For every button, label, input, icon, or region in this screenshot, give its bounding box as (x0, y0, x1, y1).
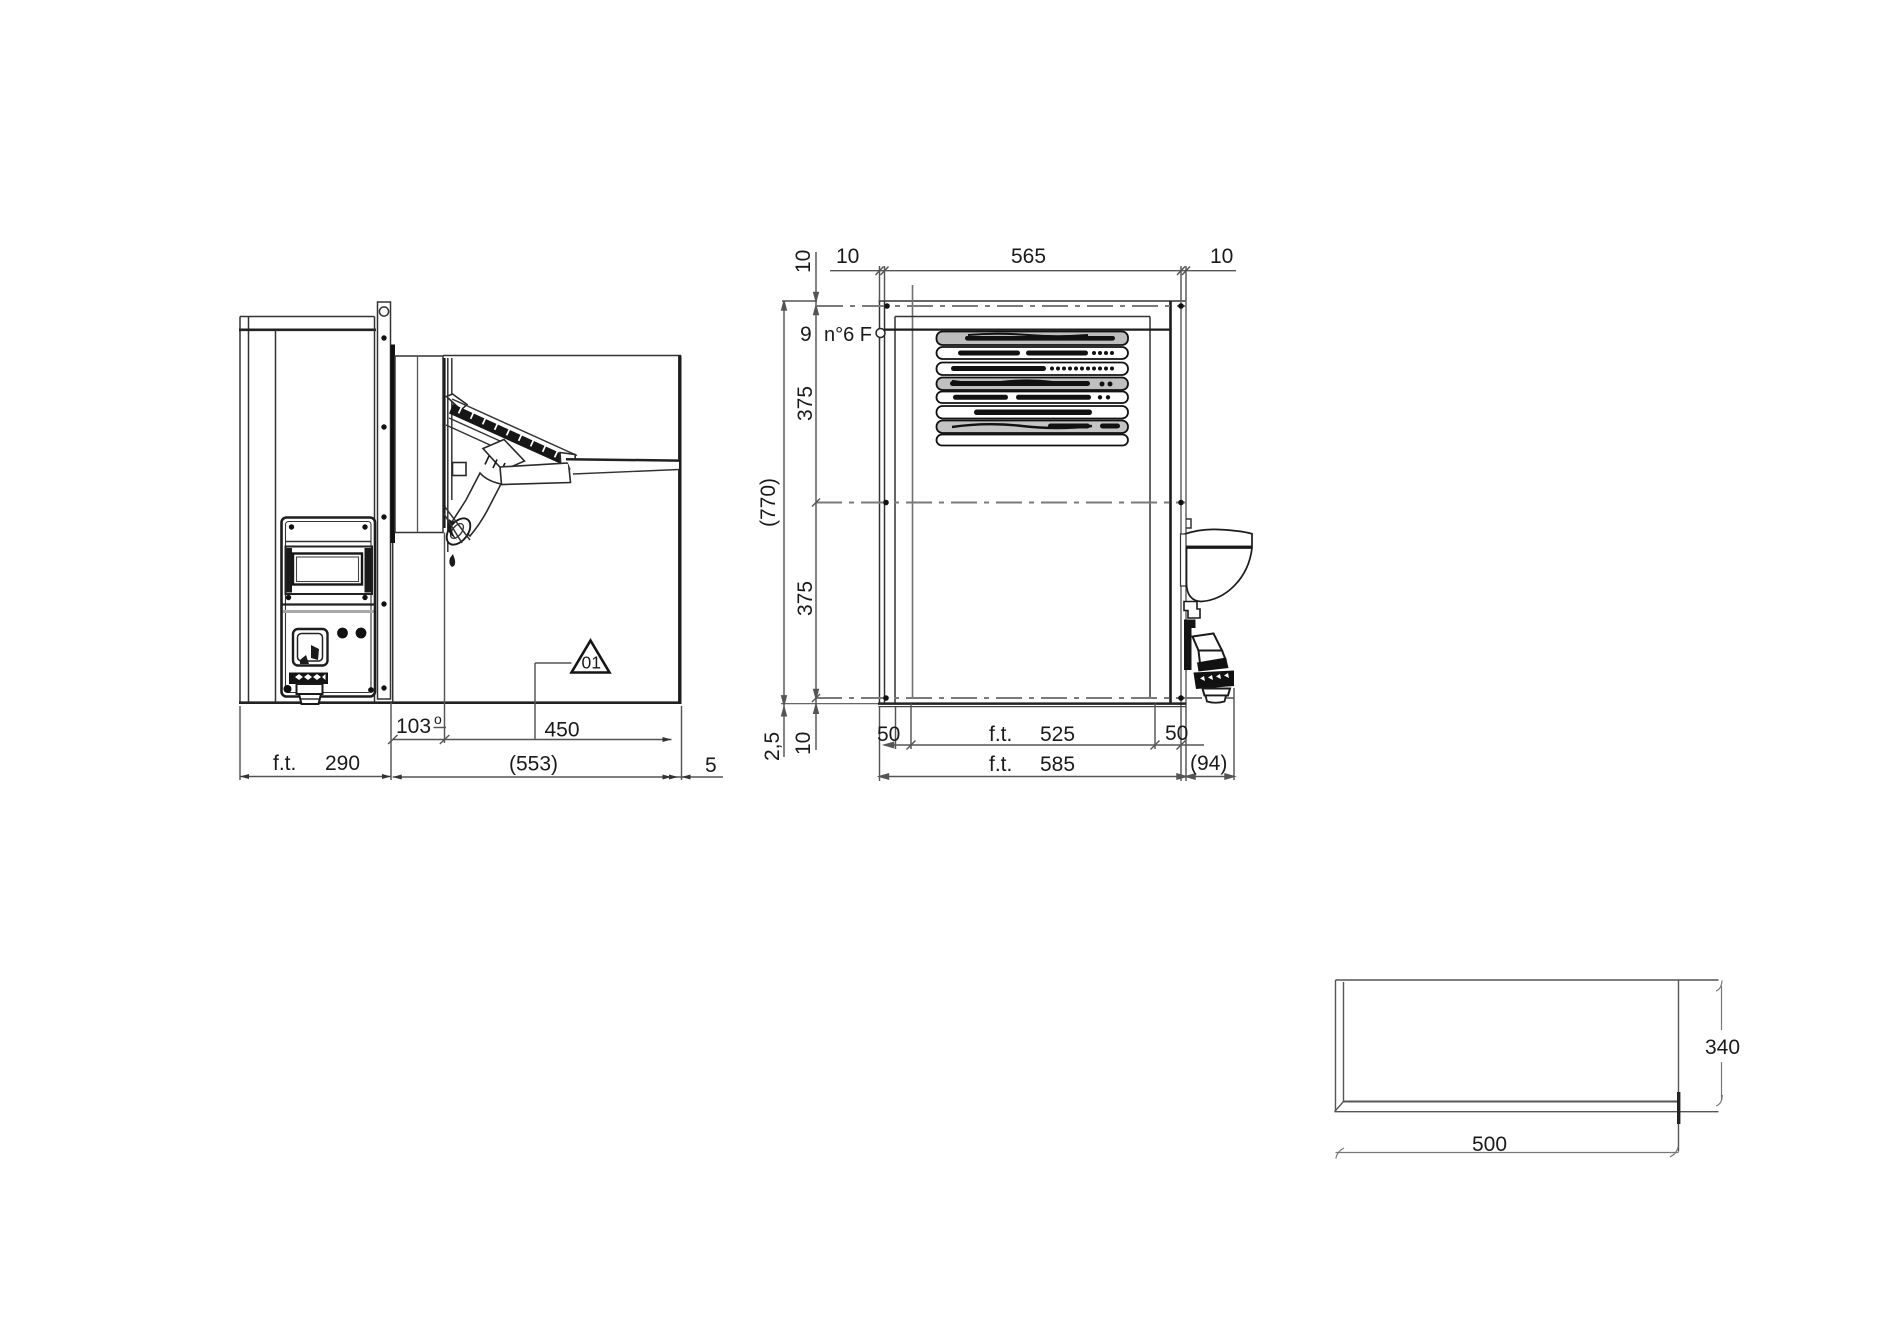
svg-text:10: 10 (1210, 245, 1233, 268)
svg-text:(94): (94) (1190, 752, 1227, 775)
svg-text:01: 01 (582, 653, 601, 673)
svg-text:50: 50 (1165, 722, 1188, 745)
svg-text:450: 450 (545, 719, 580, 742)
svg-text:103: 103 (396, 715, 431, 738)
svg-text:375: 375 (794, 581, 817, 616)
svg-text:500: 500 (1472, 1133, 1507, 1156)
svg-text:585: 585 (1040, 753, 1075, 776)
svg-text:f.t.: f.t. (989, 723, 1012, 746)
svg-text:9: 9 (800, 323, 812, 346)
svg-text:o: o (434, 711, 442, 727)
svg-text:(553): (553) (509, 753, 558, 776)
svg-text:10: 10 (836, 245, 859, 268)
svg-text:(770): (770) (757, 478, 780, 527)
svg-text:f.t.: f.t. (273, 752, 296, 775)
svg-text:n°6 F: n°6 F (824, 324, 872, 346)
svg-text:375: 375 (794, 386, 817, 421)
svg-text:10: 10 (792, 250, 815, 273)
svg-text:10: 10 (792, 732, 815, 755)
svg-text:50: 50 (877, 723, 900, 746)
svg-text:565: 565 (1011, 245, 1046, 268)
svg-text:2,5: 2,5 (761, 732, 784, 761)
svg-text:525: 525 (1040, 723, 1075, 746)
svg-text:5: 5 (705, 754, 717, 777)
svg-text:340: 340 (1705, 1036, 1740, 1059)
svg-text:290: 290 (325, 752, 360, 775)
svg-text:f.t.: f.t. (989, 753, 1012, 776)
